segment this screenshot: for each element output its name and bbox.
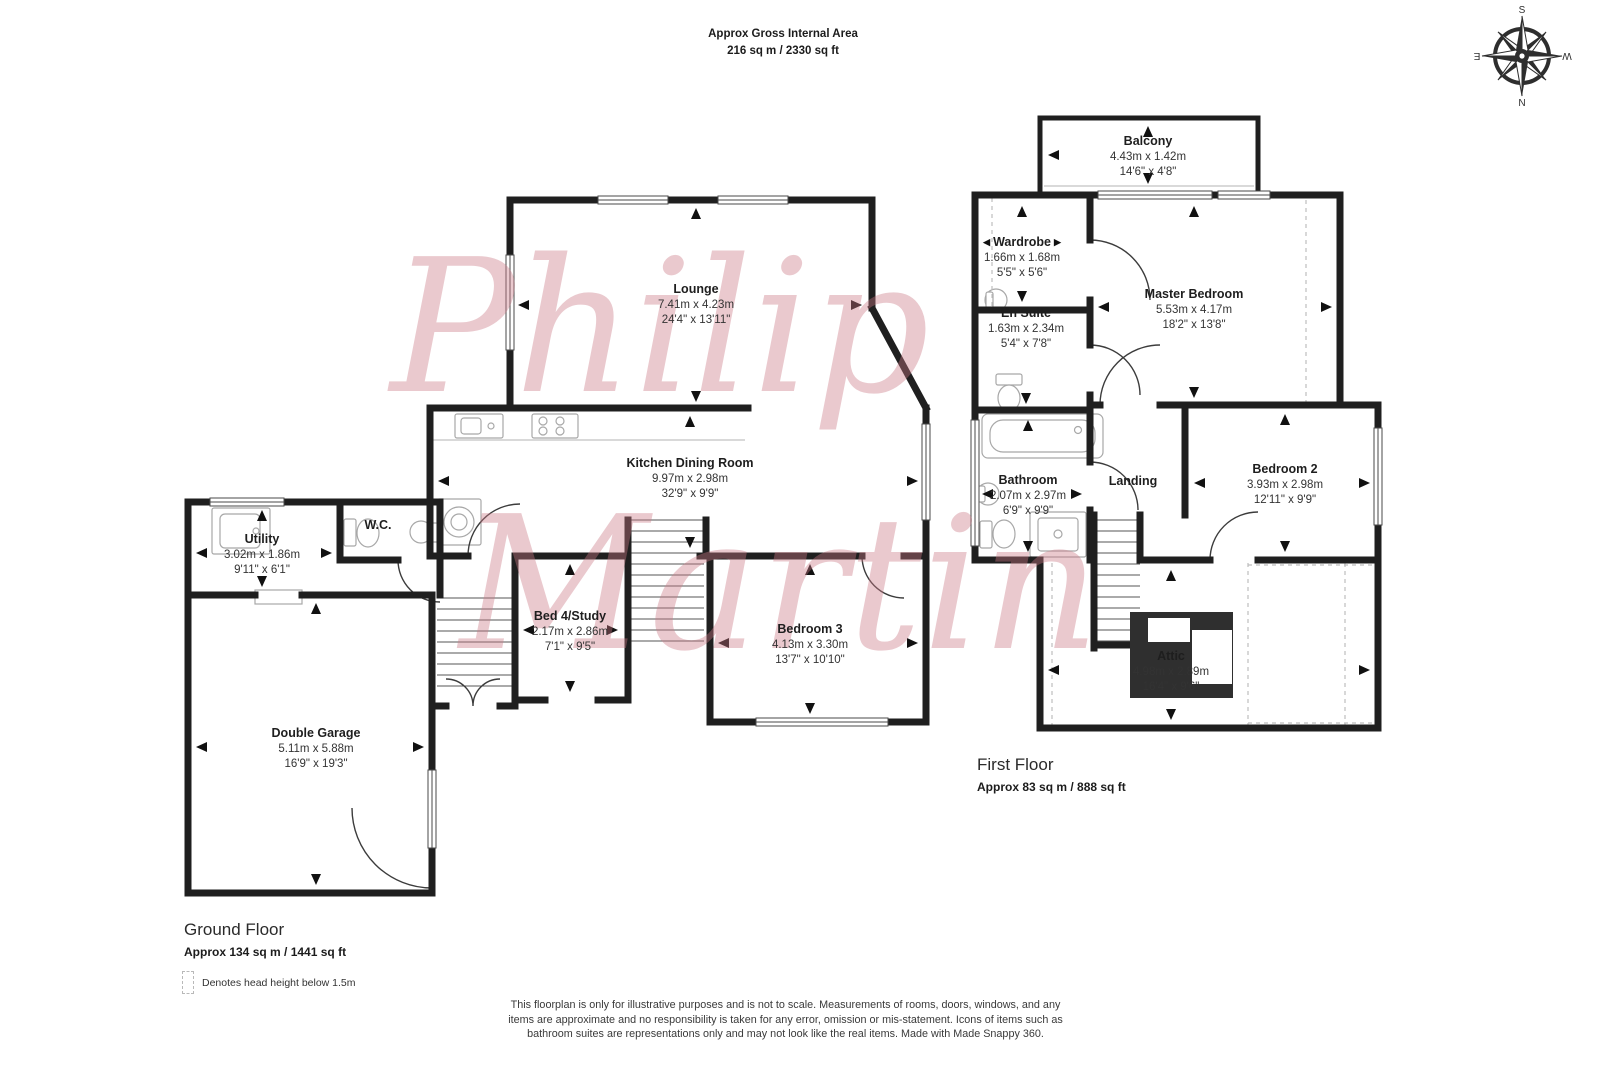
room-label-kitchen: Kitchen Dining Room 9.97m x 2.98m 32'9" …	[565, 455, 815, 502]
room-label-bedroom3: Bedroom 3 4.13m x 3.30m 13'7" x 10'10"	[735, 621, 885, 668]
room-label-bed4: Bed 4/Study 2.17m x 2.86m 7'1" x 9'5"	[495, 608, 645, 655]
room-label-ensuite: En Suite 1.63m x 2.34m 5'4" x 7'8"	[951, 305, 1101, 352]
compass-south-label: S	[1519, 6, 1526, 16]
compass-star	[1474, 8, 1570, 104]
compass-west-label: W	[1562, 50, 1572, 61]
floorplan-page: { "header": { "title": "Approx Gross Int…	[0, 0, 1618, 1080]
fixture-icons	[212, 186, 1254, 604]
compass-rose-icon: S N E W	[1472, 6, 1572, 106]
compass-east-label: E	[1473, 50, 1480, 61]
room-label-master: Master Bedroom 5.53m x 4.17m 18'2" x 13'…	[1094, 286, 1294, 333]
right-arrow-icon: ▶	[1051, 237, 1064, 247]
room-label-lounge: Lounge 7.41m x 4.23m 24'4" x 13'11"	[596, 281, 796, 328]
room-label-bathroom: Bathroom 2.07m x 2.97m 6'9" x 9'9"	[953, 472, 1103, 519]
room-label-landing: Landing	[1083, 473, 1183, 490]
room-label-wardrobe: ◀Wardrobe▶ 1.66m x 1.68m 5'5" x 5'6"	[947, 234, 1097, 281]
room-label-attic: Attic 4.98m x 2.89m 16'4" x 9'6"	[1071, 648, 1271, 695]
room-label-garage: Double Garage 5.11m x 5.88m 16'9" x 19'3…	[216, 725, 416, 772]
left-arrow-icon: ◀	[980, 237, 993, 247]
compass-north-label: N	[1518, 96, 1525, 106]
room-label-utility: Utility 3.02m x 1.86m 9'11" x 6'1"	[187, 531, 337, 578]
room-label-balcony: Balcony 4.43m x 1.42m 14'6" x 4'8"	[1048, 133, 1248, 180]
room-label-bedroom2: Bedroom 2 3.93m x 2.98m 12'11" x 9'9"	[1185, 461, 1385, 508]
room-label-wc: W.C.	[338, 517, 418, 534]
